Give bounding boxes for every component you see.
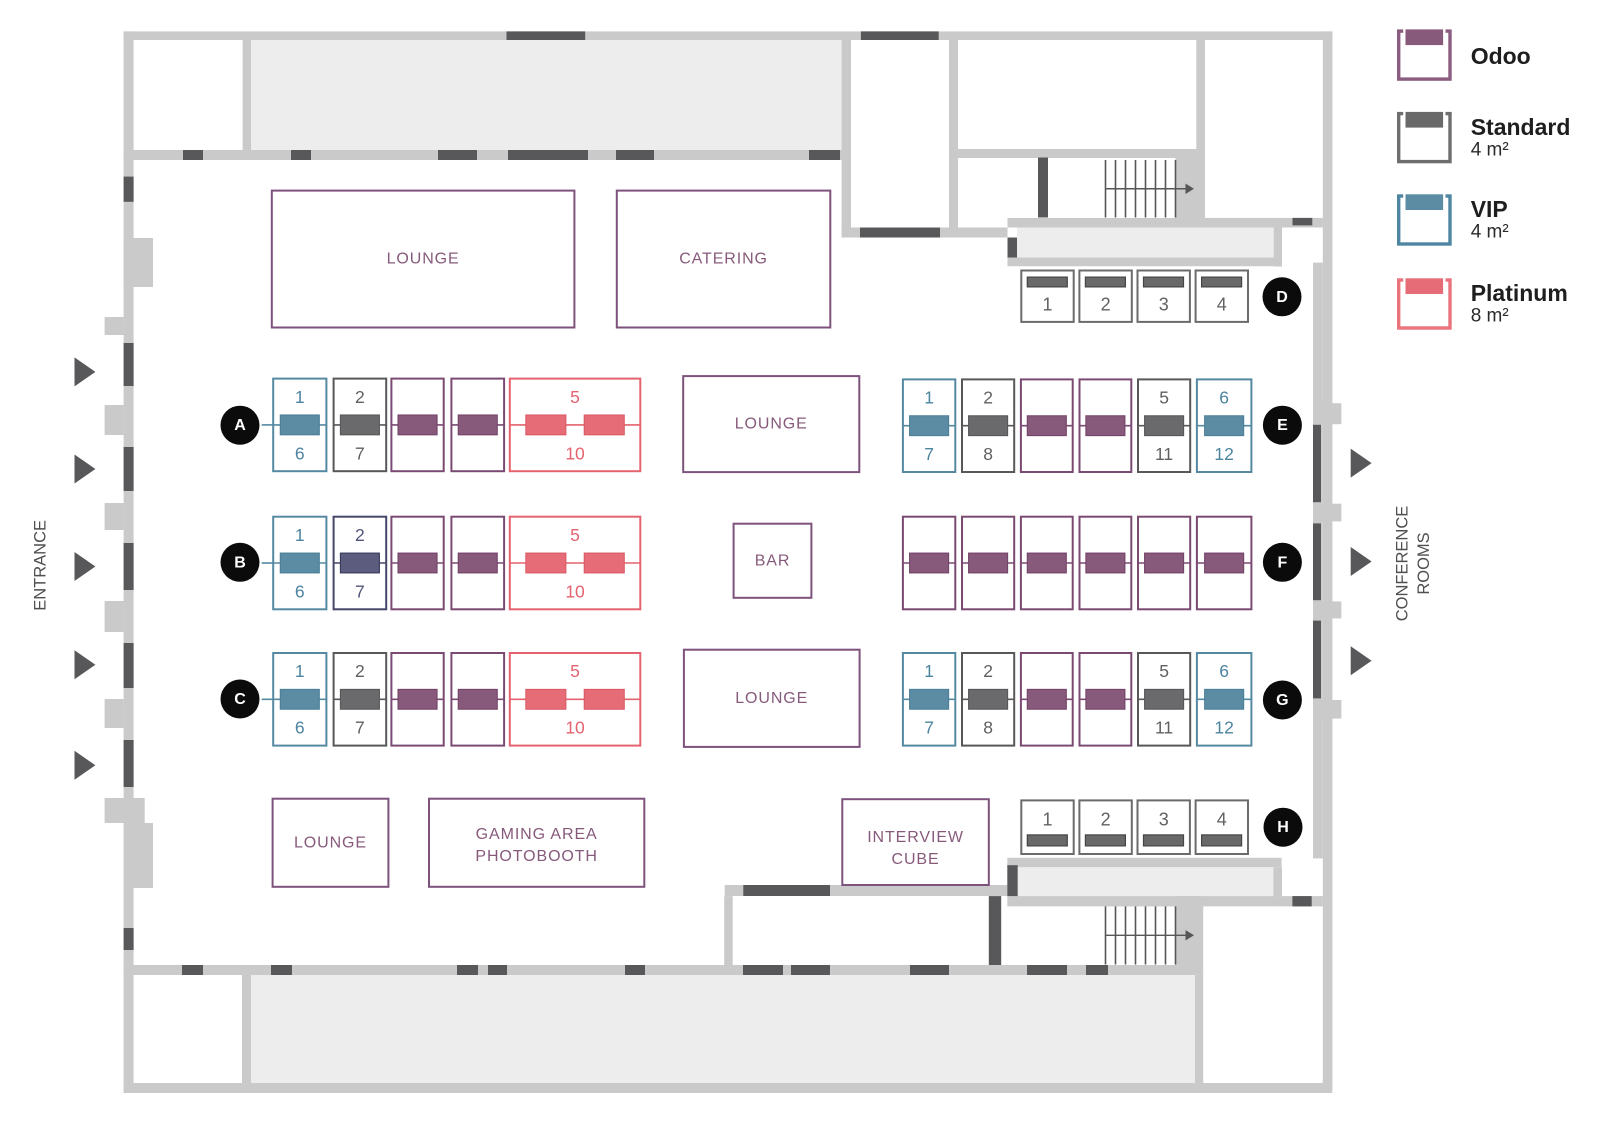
svg-text:3: 3	[1159, 295, 1169, 315]
svg-text:7: 7	[355, 443, 365, 463]
svg-text:INTERVIEW: INTERVIEW	[867, 829, 964, 846]
svg-text:4: 4	[1217, 295, 1227, 315]
svg-text:7: 7	[355, 718, 365, 738]
svg-text:7: 7	[924, 718, 934, 738]
svg-text:2: 2	[1101, 295, 1111, 315]
svg-text:5: 5	[570, 525, 580, 545]
svg-text:B: B	[234, 554, 246, 571]
svg-text:3: 3	[1159, 809, 1169, 829]
svg-text:F: F	[1278, 554, 1288, 571]
svg-text:Odoo: Odoo	[1471, 43, 1531, 69]
svg-text:6: 6	[295, 581, 305, 601]
svg-text:GAMING AREA: GAMING AREA	[476, 826, 598, 843]
svg-text:5: 5	[570, 387, 580, 407]
svg-text:D: D	[1276, 289, 1288, 306]
svg-text:12: 12	[1214, 718, 1233, 738]
svg-text:11: 11	[1155, 718, 1173, 738]
svg-text:2: 2	[355, 661, 365, 681]
svg-text:E: E	[1277, 417, 1288, 434]
svg-text:Standard: Standard	[1471, 114, 1571, 140]
svg-text:LOUNGE: LOUNGE	[735, 416, 808, 433]
svg-text:CATERING: CATERING	[679, 251, 768, 268]
svg-text:4 m²: 4 m²	[1471, 139, 1509, 160]
svg-text:8 m²: 8 m²	[1471, 306, 1509, 327]
svg-text:C: C	[234, 691, 246, 708]
svg-text:2: 2	[355, 387, 365, 407]
svg-text:CONFERENCE: CONFERENCE	[1393, 506, 1411, 622]
svg-text:Platinum: Platinum	[1471, 280, 1568, 306]
svg-text:1: 1	[1042, 295, 1052, 315]
svg-text:ROOMS: ROOMS	[1415, 532, 1433, 594]
svg-text:1: 1	[295, 525, 305, 545]
svg-text:10: 10	[565, 443, 585, 463]
svg-text:4: 4	[1217, 809, 1227, 829]
svg-text:8: 8	[983, 718, 993, 738]
svg-text:7: 7	[355, 581, 365, 601]
svg-text:ENTRANCE: ENTRANCE	[32, 520, 50, 611]
svg-text:2: 2	[355, 525, 365, 545]
svg-text:VIP: VIP	[1471, 196, 1508, 222]
svg-text:10: 10	[565, 581, 585, 601]
svg-text:5: 5	[1159, 388, 1169, 408]
svg-text:6: 6	[1219, 661, 1229, 681]
svg-text:1: 1	[295, 661, 305, 681]
svg-text:PHOTOBOOTH: PHOTOBOOTH	[475, 848, 598, 865]
svg-text:LOUNGE: LOUNGE	[294, 834, 367, 851]
svg-text:1: 1	[1042, 809, 1052, 829]
svg-text:6: 6	[1219, 388, 1229, 408]
svg-text:2: 2	[983, 661, 993, 681]
svg-text:2: 2	[1101, 809, 1111, 829]
svg-text:1: 1	[924, 388, 934, 408]
svg-text:H: H	[1277, 819, 1289, 836]
svg-text:6: 6	[295, 718, 305, 738]
svg-text:1: 1	[924, 661, 934, 681]
svg-text:CUBE: CUBE	[892, 851, 940, 868]
svg-text:4 m²: 4 m²	[1471, 222, 1509, 243]
svg-text:LOUNGE: LOUNGE	[735, 690, 808, 707]
svg-text:7: 7	[924, 444, 934, 464]
svg-text:5: 5	[570, 661, 580, 681]
svg-text:LOUNGE: LOUNGE	[387, 251, 460, 268]
svg-text:11: 11	[1155, 444, 1173, 464]
svg-text:G: G	[1276, 692, 1288, 709]
svg-text:1: 1	[295, 387, 305, 407]
svg-text:8: 8	[983, 444, 993, 464]
svg-text:6: 6	[295, 443, 305, 463]
svg-text:2: 2	[983, 388, 993, 408]
svg-text:BAR: BAR	[755, 552, 791, 569]
svg-text:10: 10	[565, 718, 585, 738]
svg-text:5: 5	[1159, 661, 1169, 681]
svg-text:12: 12	[1214, 444, 1233, 464]
svg-text:A: A	[234, 417, 246, 434]
